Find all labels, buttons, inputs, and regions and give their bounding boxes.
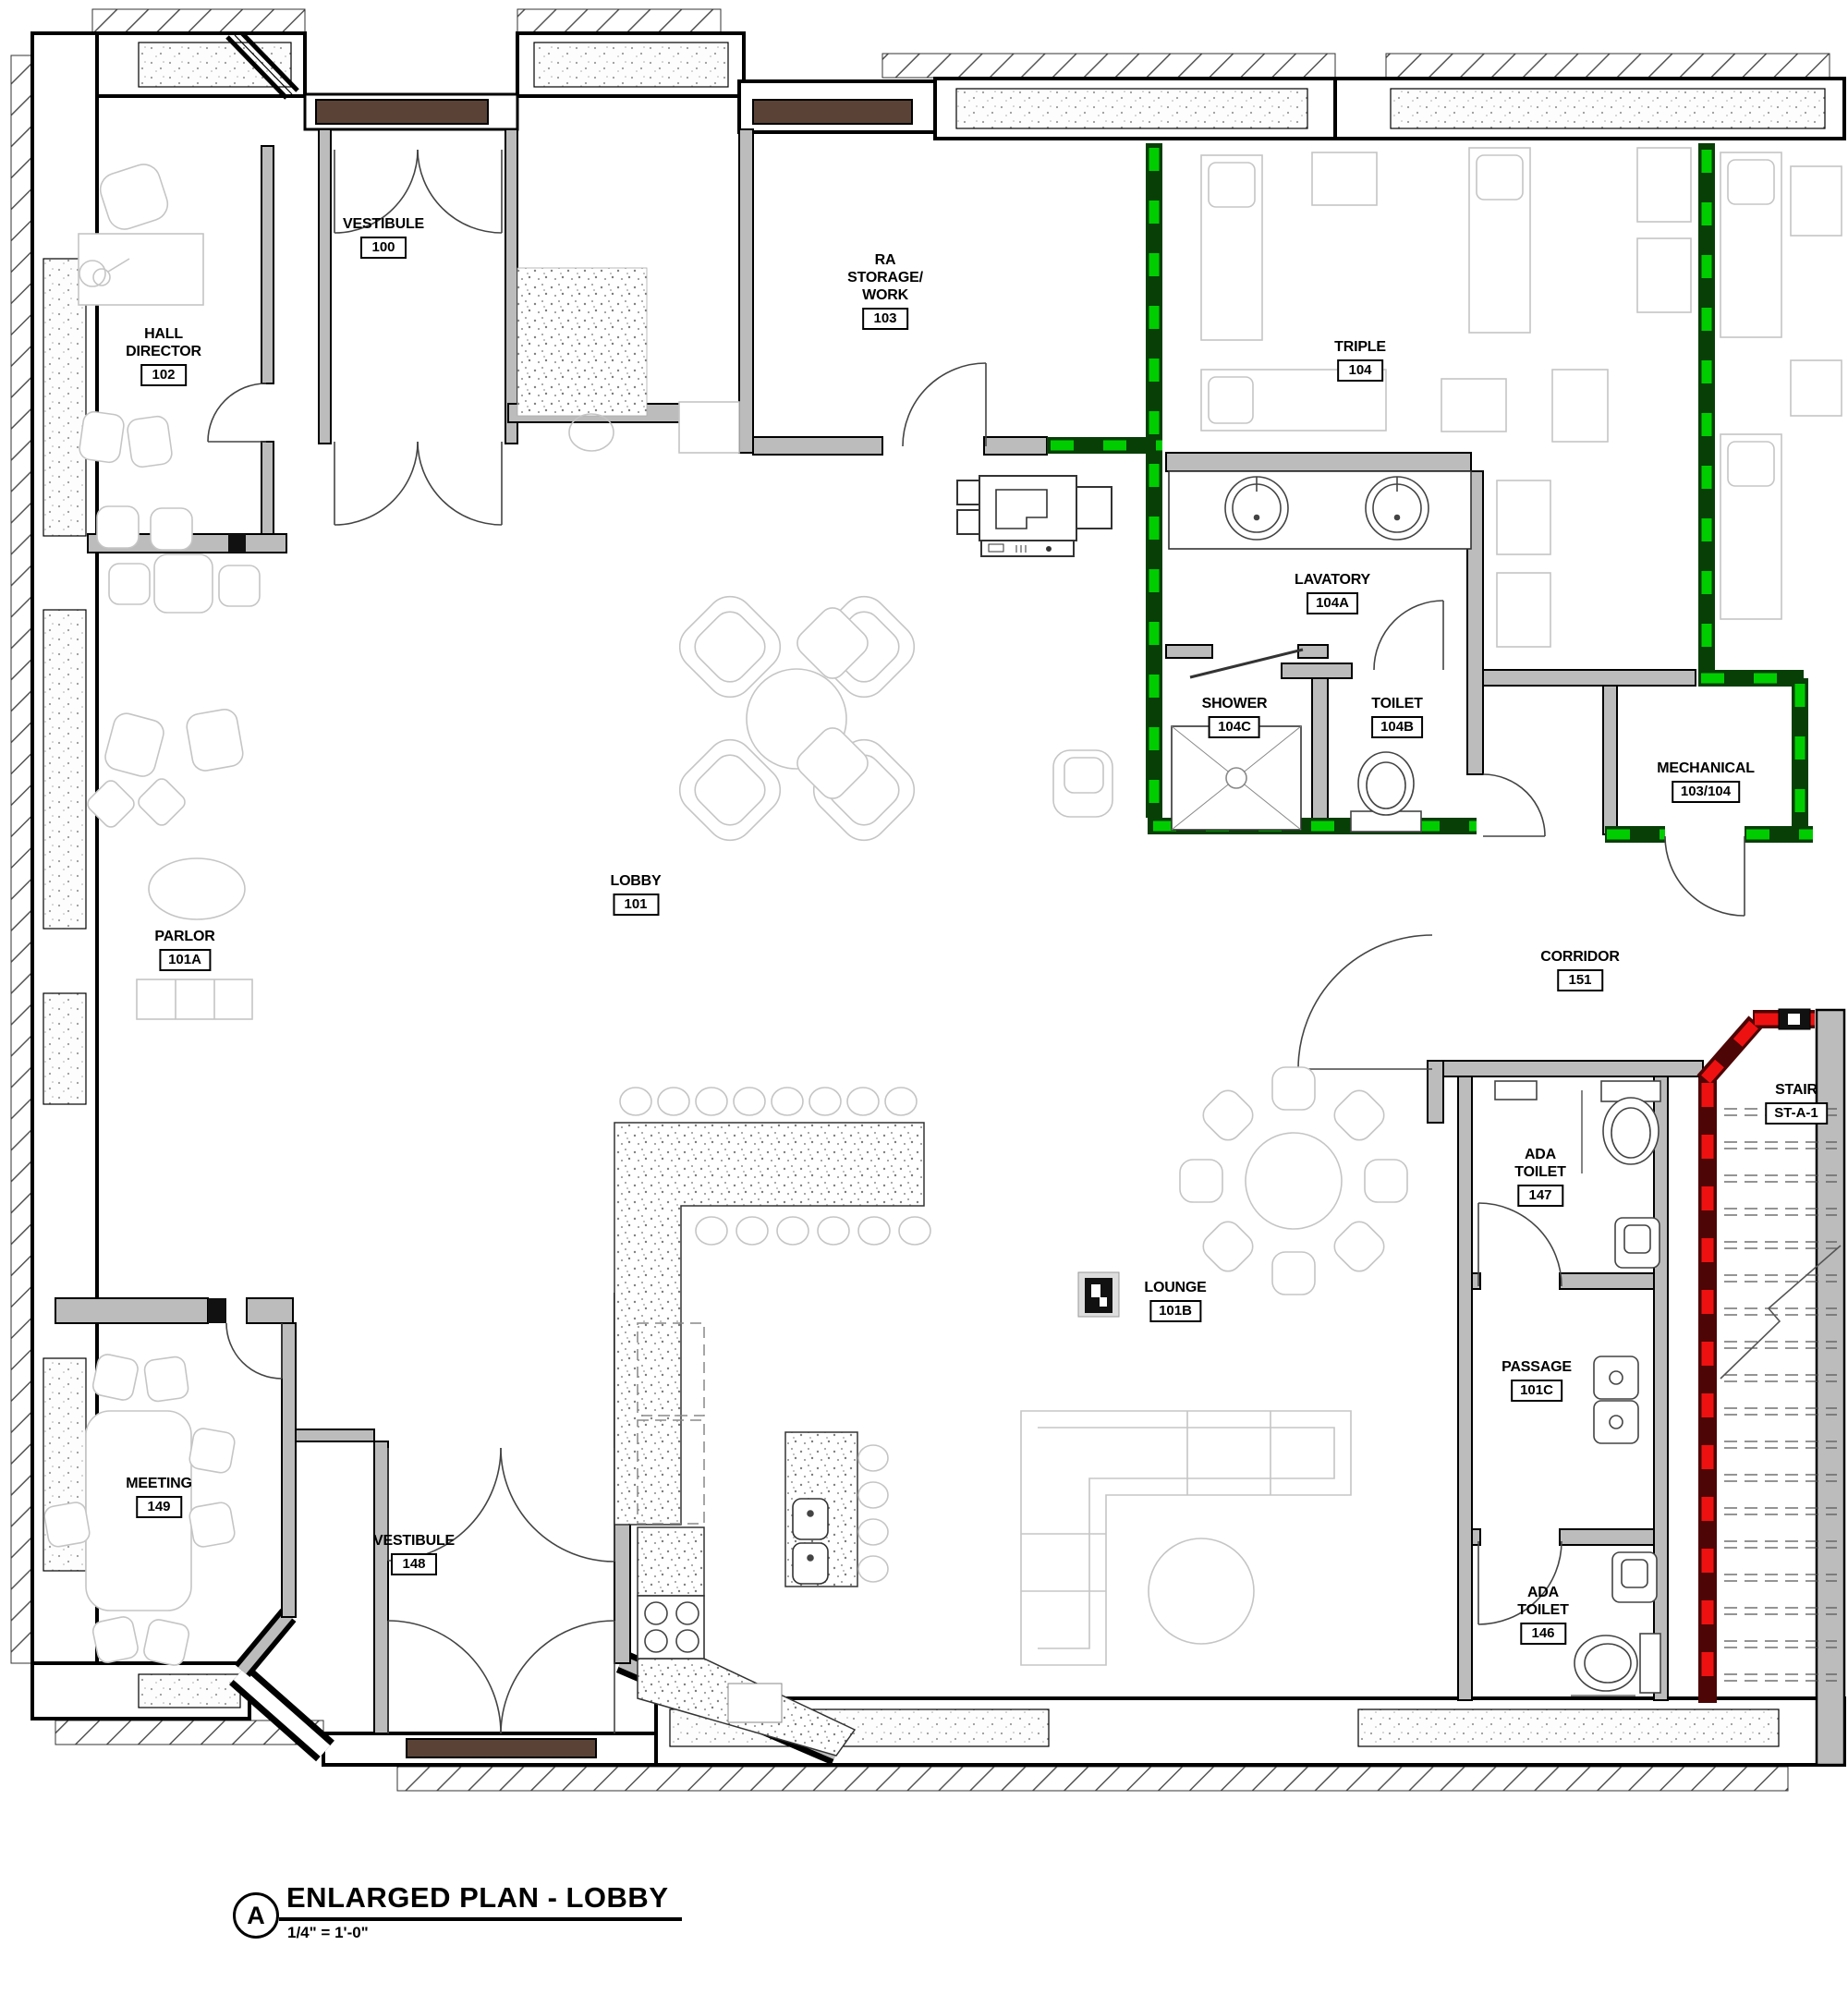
room-label-104C: SHOWER104C (1202, 695, 1268, 738)
room-number: 102 (140, 364, 187, 386)
room-name: LOUNGE (1144, 1279, 1206, 1296)
room-name: LOBBY (610, 872, 661, 890)
room-name: PASSAGE (1501, 1358, 1572, 1376)
room-number: 101B (1149, 1300, 1201, 1322)
room-label-101A: PARLOR101A (154, 928, 214, 971)
room-name: ADA (1514, 1146, 1565, 1163)
drawing-scale: 1/4" = 1'-0" (279, 1921, 682, 1942)
room-labels-layer: VESTIBULE100HALLDIRECTOR102RASTORAGE/WOR… (0, 0, 1848, 1994)
room-label-104B: TOILET104B (1371, 695, 1423, 738)
room-number: 104C (1209, 716, 1260, 738)
room-number: 101 (613, 894, 659, 916)
room-number: ST-A-1 (1765, 1102, 1828, 1125)
room-number: 146 (1520, 1623, 1566, 1645)
title-block: A ENLARGED PLAN - LOBBY 1/4" = 1'-0" (233, 1881, 682, 1942)
room-label-148: VESTIBULE148 (373, 1532, 455, 1575)
room-label-147: ADATOILET147 (1514, 1146, 1565, 1207)
room-name: LAVATORY (1295, 571, 1370, 589)
detail-marker-circle: A (233, 1892, 279, 1939)
room-label-151: CORRIDOR151 (1540, 948, 1620, 991)
room-number: 148 (391, 1553, 437, 1575)
room-label-103-104: MECHANICAL103/104 (1657, 760, 1755, 803)
room-label-100: VESTIBULE100 (343, 215, 424, 259)
room-name: MECHANICAL (1657, 760, 1755, 777)
room-name: STAIR (1765, 1081, 1828, 1099)
room-name: TOILET (1371, 695, 1423, 712)
room-label-104A: LAVATORY104A (1295, 571, 1370, 614)
room-label-ST-A-1: STAIRST-A-1 (1765, 1081, 1828, 1125)
room-name: TRIPLE (1334, 338, 1386, 356)
room-label-101B: LOUNGE101B (1144, 1279, 1206, 1322)
room-label-102: HALLDIRECTOR102 (126, 325, 201, 386)
room-label-149: MEETING149 (126, 1475, 192, 1518)
room-name: WORK (847, 286, 923, 304)
room-label-103: RASTORAGE/WORK103 (847, 251, 923, 330)
room-name: TOILET (1514, 1163, 1565, 1181)
room-number: 101A (159, 949, 211, 971)
room-name: PARLOR (154, 928, 214, 945)
room-number: 103 (862, 308, 908, 330)
room-name: VESTIBULE (373, 1532, 455, 1550)
room-name: STORAGE/ (847, 269, 923, 286)
room-name: RA (847, 251, 923, 269)
room-number: 104B (1371, 716, 1423, 738)
drawing-title: ENLARGED PLAN - LOBBY (279, 1881, 682, 1921)
room-name: HALL (126, 325, 201, 343)
room-label-101C: PASSAGE101C (1501, 1358, 1572, 1402)
detail-letter: A (247, 1902, 265, 1930)
room-label-101: LOBBY101 (610, 872, 661, 916)
room-number: 104A (1307, 592, 1358, 614)
room-number: 103/104 (1672, 781, 1740, 803)
room-name: DIRECTOR (126, 343, 201, 360)
room-name: CORRIDOR (1540, 948, 1620, 966)
room-label-104: TRIPLE104 (1334, 338, 1386, 382)
room-number: 100 (360, 237, 407, 259)
room-name: MEETING (126, 1475, 192, 1492)
room-name: ADA (1517, 1584, 1568, 1601)
room-number: 147 (1517, 1185, 1563, 1207)
room-number: 149 (136, 1496, 182, 1518)
room-number: 101C (1511, 1380, 1562, 1402)
room-name: SHOWER (1202, 695, 1268, 712)
room-name: TOILET (1517, 1601, 1568, 1619)
floor-plan-canvas: VESTIBULE100HALLDIRECTOR102RASTORAGE/WOR… (0, 0, 1848, 1994)
room-number: 151 (1557, 969, 1603, 991)
room-number: 104 (1337, 359, 1383, 382)
room-name: VESTIBULE (343, 215, 424, 233)
room-label-146: ADATOILET146 (1517, 1584, 1568, 1645)
